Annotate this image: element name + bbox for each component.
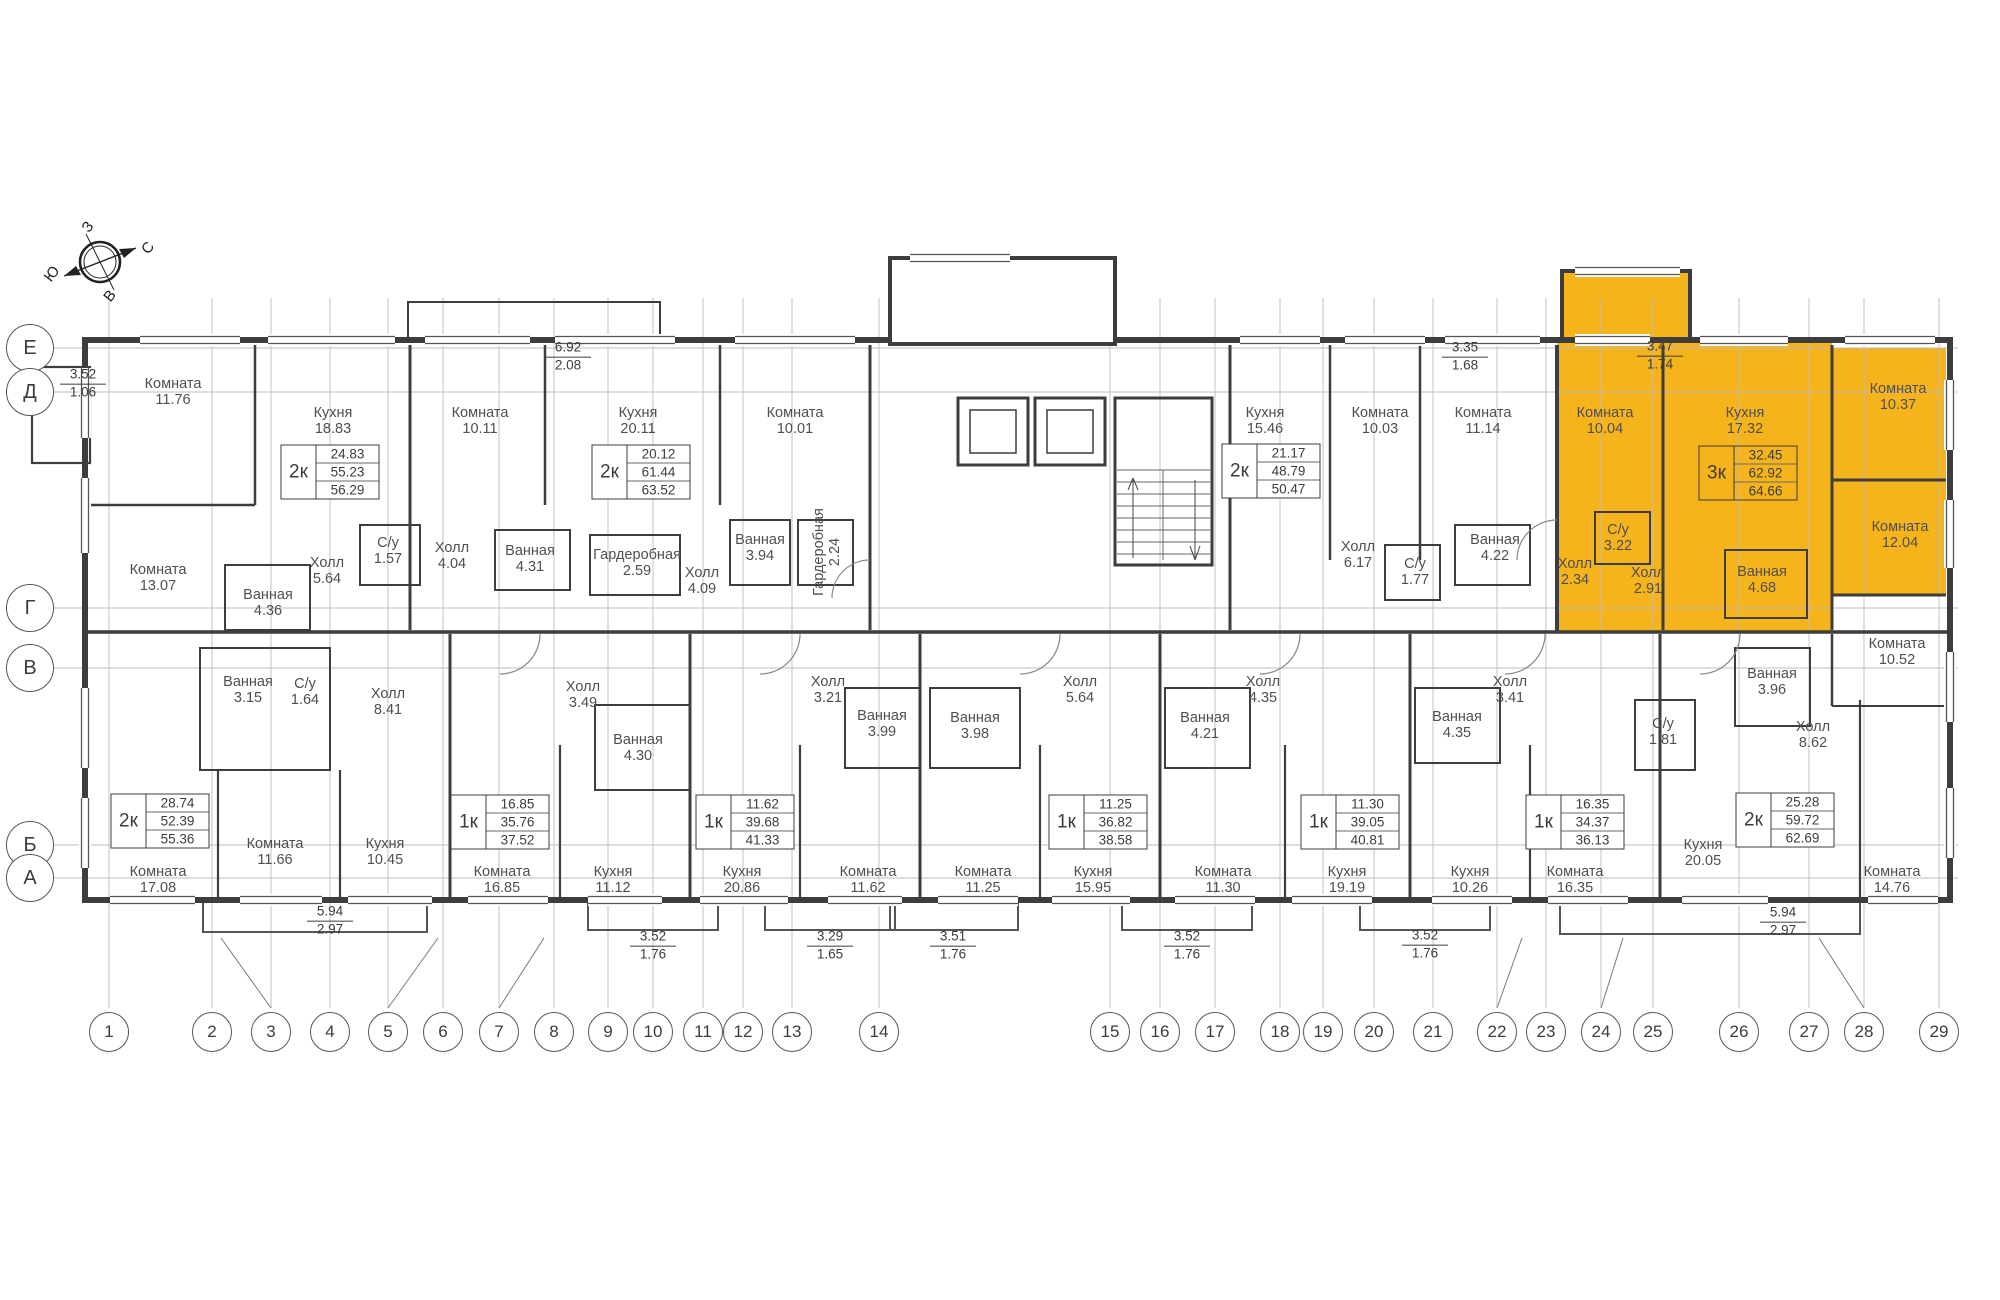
room-label: Комната10.37: [1870, 381, 1927, 413]
room-label: С/у1.64: [291, 676, 319, 708]
room-label: Кухня11.12: [594, 864, 633, 896]
room-label: Кухня17.32: [1726, 405, 1765, 437]
room-label: Комната11.25: [955, 864, 1012, 896]
dimension-label: 3.521.06: [60, 368, 106, 401]
dimension-label: 3.291.65: [807, 930, 853, 963]
room-label: Ванная4.31: [505, 543, 555, 575]
axis-circle-column: 10: [633, 1012, 673, 1052]
room-label: Комната14.76: [1864, 864, 1921, 896]
axis-circle-column: 21: [1413, 1012, 1453, 1052]
room-label: Холл4.04: [435, 540, 469, 572]
axis-circle-column: 5: [368, 1012, 408, 1052]
axis-circle-row: Г: [6, 584, 54, 632]
axis-circle-column: 24: [1581, 1012, 1621, 1052]
room-label: Ванная4.68: [1737, 564, 1787, 596]
room-label: С/у1.57: [374, 535, 402, 567]
room-label: Кухня20.86: [723, 864, 762, 896]
room-label: Холл6.17: [1341, 539, 1375, 571]
apartment-spec-table: 2к20.1261.4463.52: [592, 445, 691, 500]
axis-circle-column: 25: [1633, 1012, 1673, 1052]
room-label: Ванная3.98: [950, 710, 1000, 742]
axis-circle-column: 6: [423, 1012, 463, 1052]
room-label: Кухня15.46: [1246, 405, 1285, 437]
axis-circle-column: 4: [310, 1012, 350, 1052]
room-label: Кухня20.11: [619, 405, 658, 437]
room-label: Ванная4.30: [613, 732, 663, 764]
axis-circle-column: 3: [251, 1012, 291, 1052]
room-label: Комната10.11: [452, 405, 509, 437]
axis-circle-column: 9: [588, 1012, 628, 1052]
apartment-spec-table: 1к11.6239.6841.33: [696, 795, 795, 850]
room-label: Холл2.34: [1558, 556, 1592, 588]
axis-circle-column: 18: [1260, 1012, 1300, 1052]
dimension-label: 5.942.97: [1760, 906, 1806, 939]
room-label: Комната10.01: [767, 405, 824, 437]
axis-circle-column: 27: [1789, 1012, 1829, 1052]
dimension-label: 3.521.76: [1164, 930, 1210, 963]
room-label: Кухня20.05: [1684, 837, 1723, 869]
room-label: Ванная4.35: [1432, 709, 1482, 741]
room-label: Кухня10.26: [1451, 864, 1490, 896]
room-label: Холл3.41: [1493, 674, 1527, 706]
apartment-spec-table: 1к11.2536.8238.58: [1049, 795, 1148, 850]
apartment-spec-table: 2к24.8355.2356.29: [281, 445, 380, 500]
room-label: С/у1.77: [1401, 556, 1429, 588]
dimension-label: 3.521.76: [630, 930, 676, 963]
room-label: Холл8.62: [1796, 719, 1830, 751]
dimension-label: 6.922.08: [545, 341, 591, 374]
room-label: Холл3.21: [811, 674, 845, 706]
axis-circle-column: 20: [1354, 1012, 1394, 1052]
axis-circle-column: 28: [1844, 1012, 1884, 1052]
room-label: Комната11.76: [145, 376, 202, 408]
apartment-spec-table: 3к32.4562.9264.66: [1699, 446, 1798, 501]
room-label: Холл5.64: [1063, 674, 1097, 706]
axis-circle-column: 7: [479, 1012, 519, 1052]
room-label: Ванная3.15: [223, 674, 273, 706]
axis-circle-column: 26: [1719, 1012, 1759, 1052]
room-label: Кухня15.95: [1074, 864, 1113, 896]
floorplan-walls-drawing: [0, 0, 2000, 1300]
room-label: Гардеробная2.59: [593, 547, 681, 579]
room-label: Комната17.08: [130, 864, 187, 896]
axis-circle-row: А: [6, 854, 54, 902]
room-label: Комната12.04: [1872, 519, 1929, 551]
axis-circle-row: Е: [6, 324, 54, 372]
axis-circle-column: 16: [1140, 1012, 1180, 1052]
room-label: Ванная4.22: [1470, 532, 1520, 564]
room-label: Комната13.07: [130, 562, 187, 594]
room-label: Комната11.30: [1195, 864, 1252, 896]
axis-circle-column: 2: [192, 1012, 232, 1052]
room-label: Холл4.35: [1246, 674, 1280, 706]
room-label: Ванная3.94: [735, 532, 785, 564]
room-label: Комната11.62: [840, 864, 897, 896]
room-label: С/у3.22: [1604, 522, 1632, 554]
apartment-spec-table: 1к16.8535.7637.52: [451, 795, 550, 850]
axis-circle-row: В: [6, 644, 54, 692]
axis-circle-column: 17: [1195, 1012, 1235, 1052]
axis-circle-column: 8: [534, 1012, 574, 1052]
axis-circle-column: 12: [723, 1012, 763, 1052]
axis-circle-column: 11: [683, 1012, 723, 1052]
axis-circle-column: 29: [1919, 1012, 1959, 1052]
room-label: Ванная3.96: [1747, 666, 1797, 698]
axis-circle-column: 14: [859, 1012, 899, 1052]
axis-circle-row: Д: [6, 368, 54, 416]
apartment-spec-table: 1к16.3534.3736.13: [1526, 795, 1625, 850]
dimension-label: 3.471.74: [1637, 340, 1683, 373]
floor-plan-page: З С Ю В Комната11.76Кухня18.83Комната10.…: [0, 0, 2000, 1300]
room-label: Комната11.66: [247, 836, 304, 868]
room-label: С/у1.81: [1649, 716, 1677, 748]
axis-circle-column: 19: [1303, 1012, 1343, 1052]
room-label: Комната10.52: [1869, 636, 1926, 668]
room-label: Кухня10.45: [366, 836, 405, 868]
apartment-spec-table: 1к11.3039.0540.81: [1301, 795, 1400, 850]
room-label: Кухня18.83: [314, 405, 353, 437]
room-label: Холл4.09: [685, 565, 719, 597]
axis-circle-column: 15: [1090, 1012, 1130, 1052]
room-label: Кухня19.19: [1328, 864, 1367, 896]
room-label: Комната16.85: [474, 864, 531, 896]
dimension-label: 3.521.76: [1402, 929, 1448, 962]
axis-circle-column: 22: [1477, 1012, 1517, 1052]
room-label: Ванная4.36: [243, 587, 293, 619]
axis-circle-column: 1: [89, 1012, 129, 1052]
apartment-spec-table: 2к28.7452.3955.36: [111, 794, 210, 849]
room-label: Холл8.41: [371, 686, 405, 718]
axis-circle-column: 23: [1526, 1012, 1566, 1052]
apartment-spec-table: 2к21.1748.7950.47: [1222, 444, 1321, 499]
dimension-label: 3.351.68: [1442, 341, 1488, 374]
room-label: Холл3.49: [566, 679, 600, 711]
room-label: Комната10.03: [1352, 405, 1409, 437]
room-label: Комната10.04: [1577, 405, 1634, 437]
room-label: Ванная3.99: [857, 708, 907, 740]
room-label: Ванная4.21: [1180, 710, 1230, 742]
room-label: Холл5.64: [310, 555, 344, 587]
room-label: Холл2.91: [1631, 565, 1665, 597]
room-label: Гардеробная2.24: [811, 508, 843, 596]
room-label: Комната16.35: [1547, 864, 1604, 896]
dimension-label: 5.942.97: [307, 905, 353, 938]
dimension-label: 3.511.76: [930, 930, 976, 963]
axis-circle-column: 13: [772, 1012, 812, 1052]
room-label: Комната11.14: [1455, 405, 1512, 437]
apartment-spec-table: 2к25.2859.7262.69: [1736, 793, 1835, 848]
